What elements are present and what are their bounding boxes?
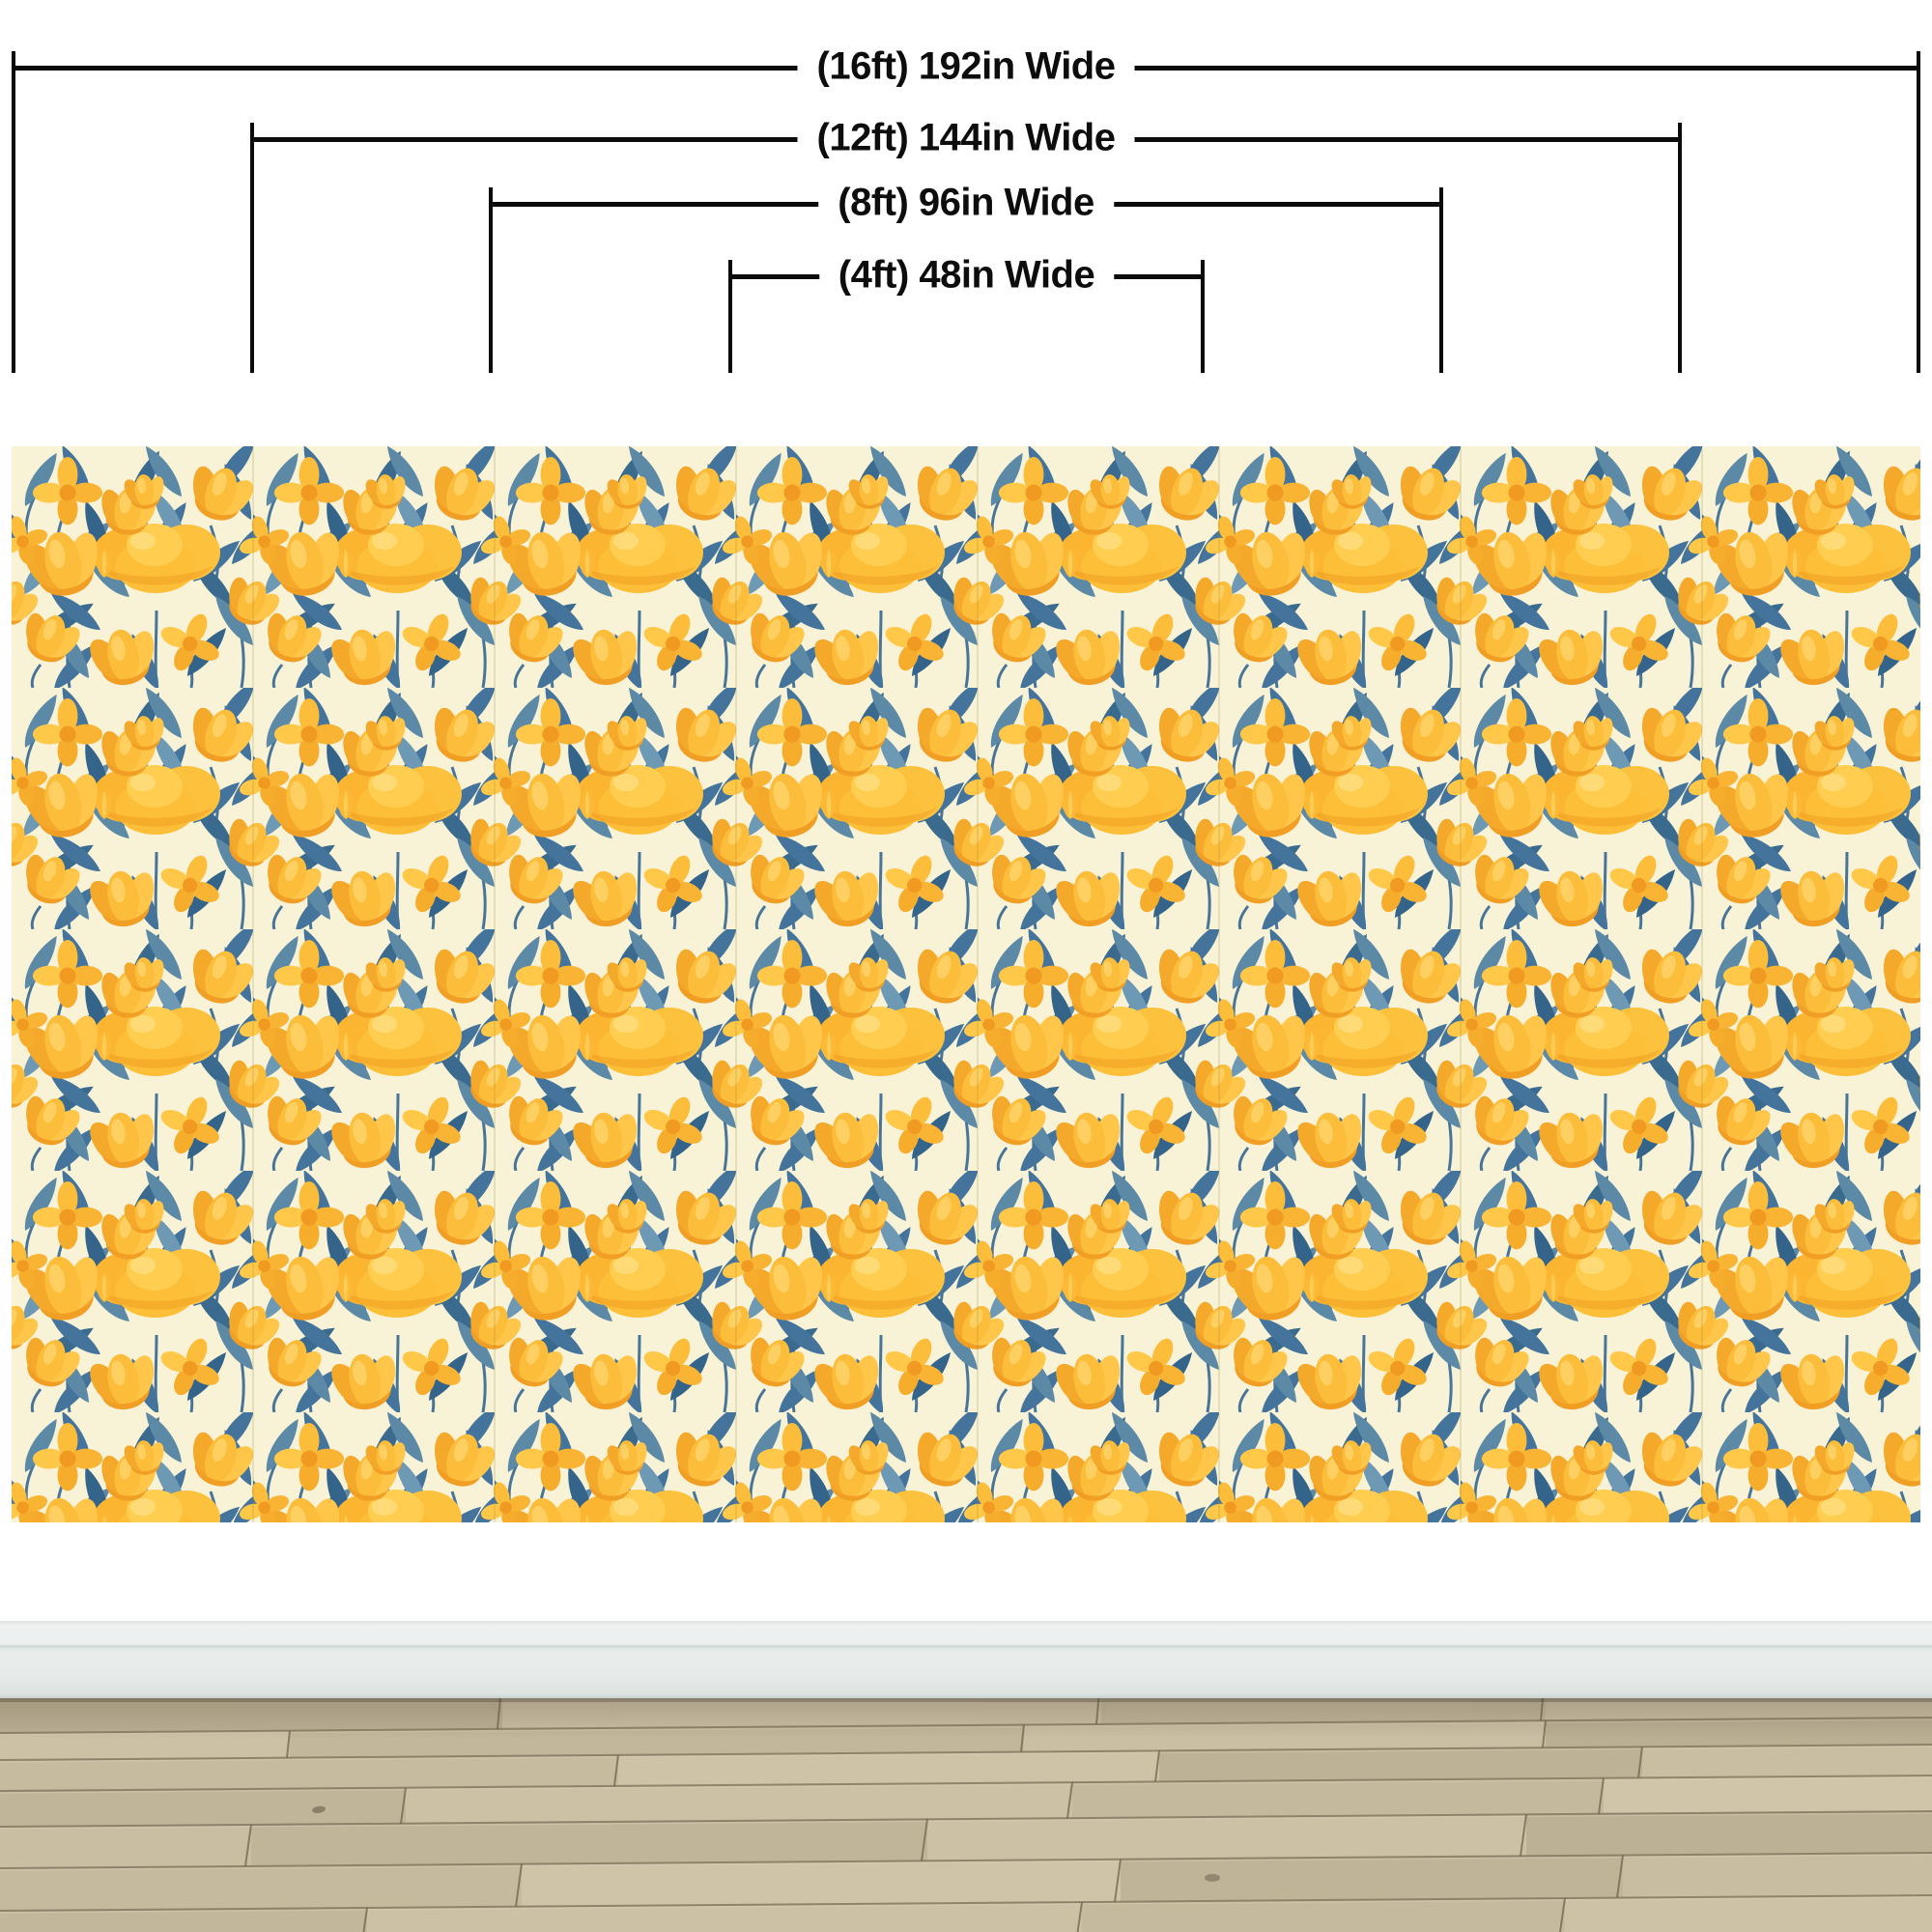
- tick-right: [1439, 187, 1443, 373]
- baseboard: [0, 1621, 1932, 1698]
- tick-left: [12, 51, 15, 373]
- tick-right: [1201, 260, 1205, 373]
- tick-left: [489, 187, 493, 373]
- wallpaper-product-mockup: { "size_guide": { "brackets": [ { "label…: [0, 0, 1932, 1932]
- dimension-label: (4ft) 48in Wide: [819, 254, 1115, 298]
- dimension-label: (8ft) 96in Wide: [818, 182, 1114, 225]
- wood-floor: [0, 1698, 1932, 1932]
- dimension-label: (12ft) 144in Wide: [798, 117, 1135, 160]
- tick-right: [1678, 123, 1682, 373]
- bracket-48in: (4ft) 48in Wide: [728, 260, 1205, 373]
- tick-right: [1917, 51, 1920, 373]
- wallpaper-pattern: [12, 446, 1920, 1522]
- tick-left: [250, 123, 254, 373]
- dimension-label: (16ft) 192in Wide: [798, 45, 1135, 89]
- tick-left: [728, 260, 732, 373]
- wallpaper-mural: [12, 446, 1920, 1522]
